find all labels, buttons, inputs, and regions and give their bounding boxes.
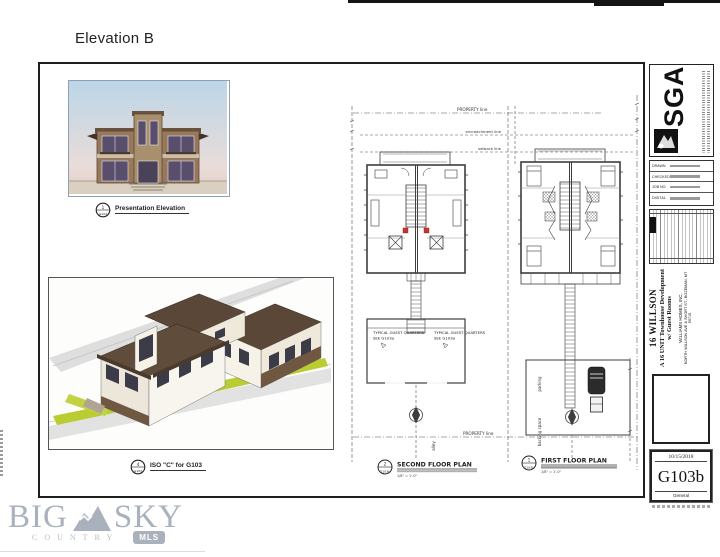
drawing-info-table: DRAWN CHECKED JOB NO. DIGITAL (649, 160, 714, 206)
presentation-elevation-image (68, 80, 230, 197)
info-row-drawn: DRAWN (650, 161, 713, 172)
sheet-date: 10/15/2018 (655, 452, 707, 462)
plan-title: SECOND FLOOR PLAN (397, 462, 472, 469)
property-line-bottom-label: PROPERTY line (463, 431, 494, 436)
revision-grid-line (649, 213, 714, 214)
detail-marker-icon: 4 G103 (130, 459, 146, 475)
encroachment-line-label: encroachment line (466, 129, 502, 134)
iso-rendering-image (48, 277, 334, 450)
architect-logo-text: SGA (652, 69, 700, 127)
stamp-box (652, 374, 710, 444)
info-row-digital: DIGITAL (650, 193, 713, 204)
red-highlight (424, 228, 429, 233)
project-client: WILLIAMS HOMES, INC. (678, 266, 683, 370)
first-floor-caption: 1 G103b FIRST FLOOR PLAN 1/8" = 1'-0" (522, 456, 617, 474)
scan-edge-strip (348, 0, 720, 3)
presentation-elevation-caption: 1 G103 Presentation Elevation (95, 202, 189, 218)
svg-text:TYPICAL GUEST QUARTERS: TYPICAL GUEST QUARTERS (433, 330, 486, 335)
second-floor-caption: 2 G103b SECOND FLOOR PLAN 1/8" = 1'-0" (378, 460, 477, 478)
marker-ref: G103 (99, 212, 107, 216)
project-type2: w/ Guest Rooms (666, 266, 673, 370)
info-row-checked: CHECKED (650, 172, 713, 183)
guest-quarters-note-right: TYPICAL GUEST QUARTERS SEE G103a (433, 330, 486, 348)
info-row-job: JOB NO. (650, 182, 713, 193)
print-margin-text (0, 430, 3, 478)
watermark-sky: SKY (114, 500, 183, 534)
north-arrow-icon (566, 410, 579, 425)
architect-logo-block: SGA (649, 64, 714, 157)
red-highlight (403, 228, 408, 233)
scanned-drawing-sheet: Elevation B (0, 0, 720, 557)
stairwell (406, 185, 426, 227)
iso-rendering (49, 278, 331, 447)
plan-scale: 1/8" = 1'-0" (541, 470, 561, 474)
floor-plans-drawing: PROPERTY line encroachment line setback … (345, 70, 645, 500)
svg-text:1: 1 (528, 458, 531, 463)
revision-grid-line (649, 258, 714, 259)
watermark-country: COUNTRY (32, 533, 119, 542)
project-type: A 16 UNIT Townhouse Development (659, 266, 666, 370)
print-fine-print (652, 505, 710, 508)
info-label: DIGITAL (652, 196, 670, 200)
mountain-logo-icon (654, 129, 678, 153)
mls-watermark: BIG SKY COUNTRY MLS (8, 500, 208, 544)
sheet-number: G103b (658, 462, 704, 491)
property-line-top-label: PROPERTY line (457, 107, 488, 112)
parking-label: parking (537, 376, 542, 392)
firm-fine-print (702, 71, 705, 153)
second-floor-plan (364, 152, 468, 423)
svg-text:SEE G103a: SEE G103a (434, 336, 455, 341)
caption-label: Presentation Elevation (115, 202, 189, 214)
marker-number: 1 (102, 205, 105, 210)
caption-label: ISO "C" for G103 (150, 459, 206, 471)
firm-fine-print (707, 71, 710, 153)
svg-text:TYPICAL GUEST QUARTERS: TYPICAL GUEST QUARTERS (372, 330, 425, 335)
mountain-watermark-icon (69, 504, 113, 532)
elevation-rendering (69, 81, 227, 194)
guest-quarters-note-left: TYPICAL GUEST QUARTERS SEE G103a (372, 330, 425, 348)
svg-text:SEE G103a: SEE G103a (373, 336, 394, 341)
leader-arrow-icon (381, 343, 386, 348)
iso-caption: 4 G103 ISO "C" for G103 (130, 459, 206, 475)
plan-scale: 1/8" = 1'-0" (397, 474, 417, 478)
walkway (565, 284, 575, 360)
car-icon (588, 367, 605, 412)
svg-text:2: 2 (384, 462, 387, 467)
svg-text:G103b: G103b (380, 470, 390, 474)
revision-schedule-label (650, 217, 656, 233)
revision-schedule-grid (649, 209, 714, 264)
north-arrow-icon (410, 408, 423, 423)
leader-arrow-icon (443, 343, 448, 348)
svg-text:G103b: G103b (524, 466, 534, 470)
backing-space-label: backing space (537, 417, 542, 446)
scan-edge-strip-dark (594, 0, 664, 6)
info-label: DRAWN (652, 164, 670, 168)
architect-logo-mark (654, 129, 678, 153)
project-name: 16 WILLSON (648, 266, 658, 370)
marker-ref: G103 (134, 469, 142, 473)
watermark-big: BIG (8, 500, 68, 534)
scan-bottom-rule (0, 551, 205, 552)
alley-label: alley (431, 441, 436, 451)
sheet-number-box: 10/15/2018 G103b General (650, 450, 712, 502)
project-title-block: 16 WILLSON A 16 UNIT Townhouse Developme… (648, 266, 714, 370)
info-label: CHECKED (652, 175, 670, 179)
info-label: JOB NO. (652, 185, 670, 189)
detail-marker-icon: 1 G103 (95, 202, 111, 218)
mls-badge: MLS (133, 531, 165, 544)
first-floor-plan (518, 149, 630, 435)
setback-line-label: setback line (478, 146, 502, 151)
sheet-category: General (655, 491, 707, 500)
project-address: NORTH WILLSON AVE & SHORT ST., BOZEMAN, … (684, 266, 692, 370)
stairwell (560, 182, 580, 230)
page-title: Elevation B (75, 30, 154, 47)
plan-title: FIRST FLOOR PLAN (541, 458, 607, 465)
marker-number: 4 (137, 462, 140, 467)
deck (521, 273, 620, 284)
walkway (411, 281, 421, 319)
